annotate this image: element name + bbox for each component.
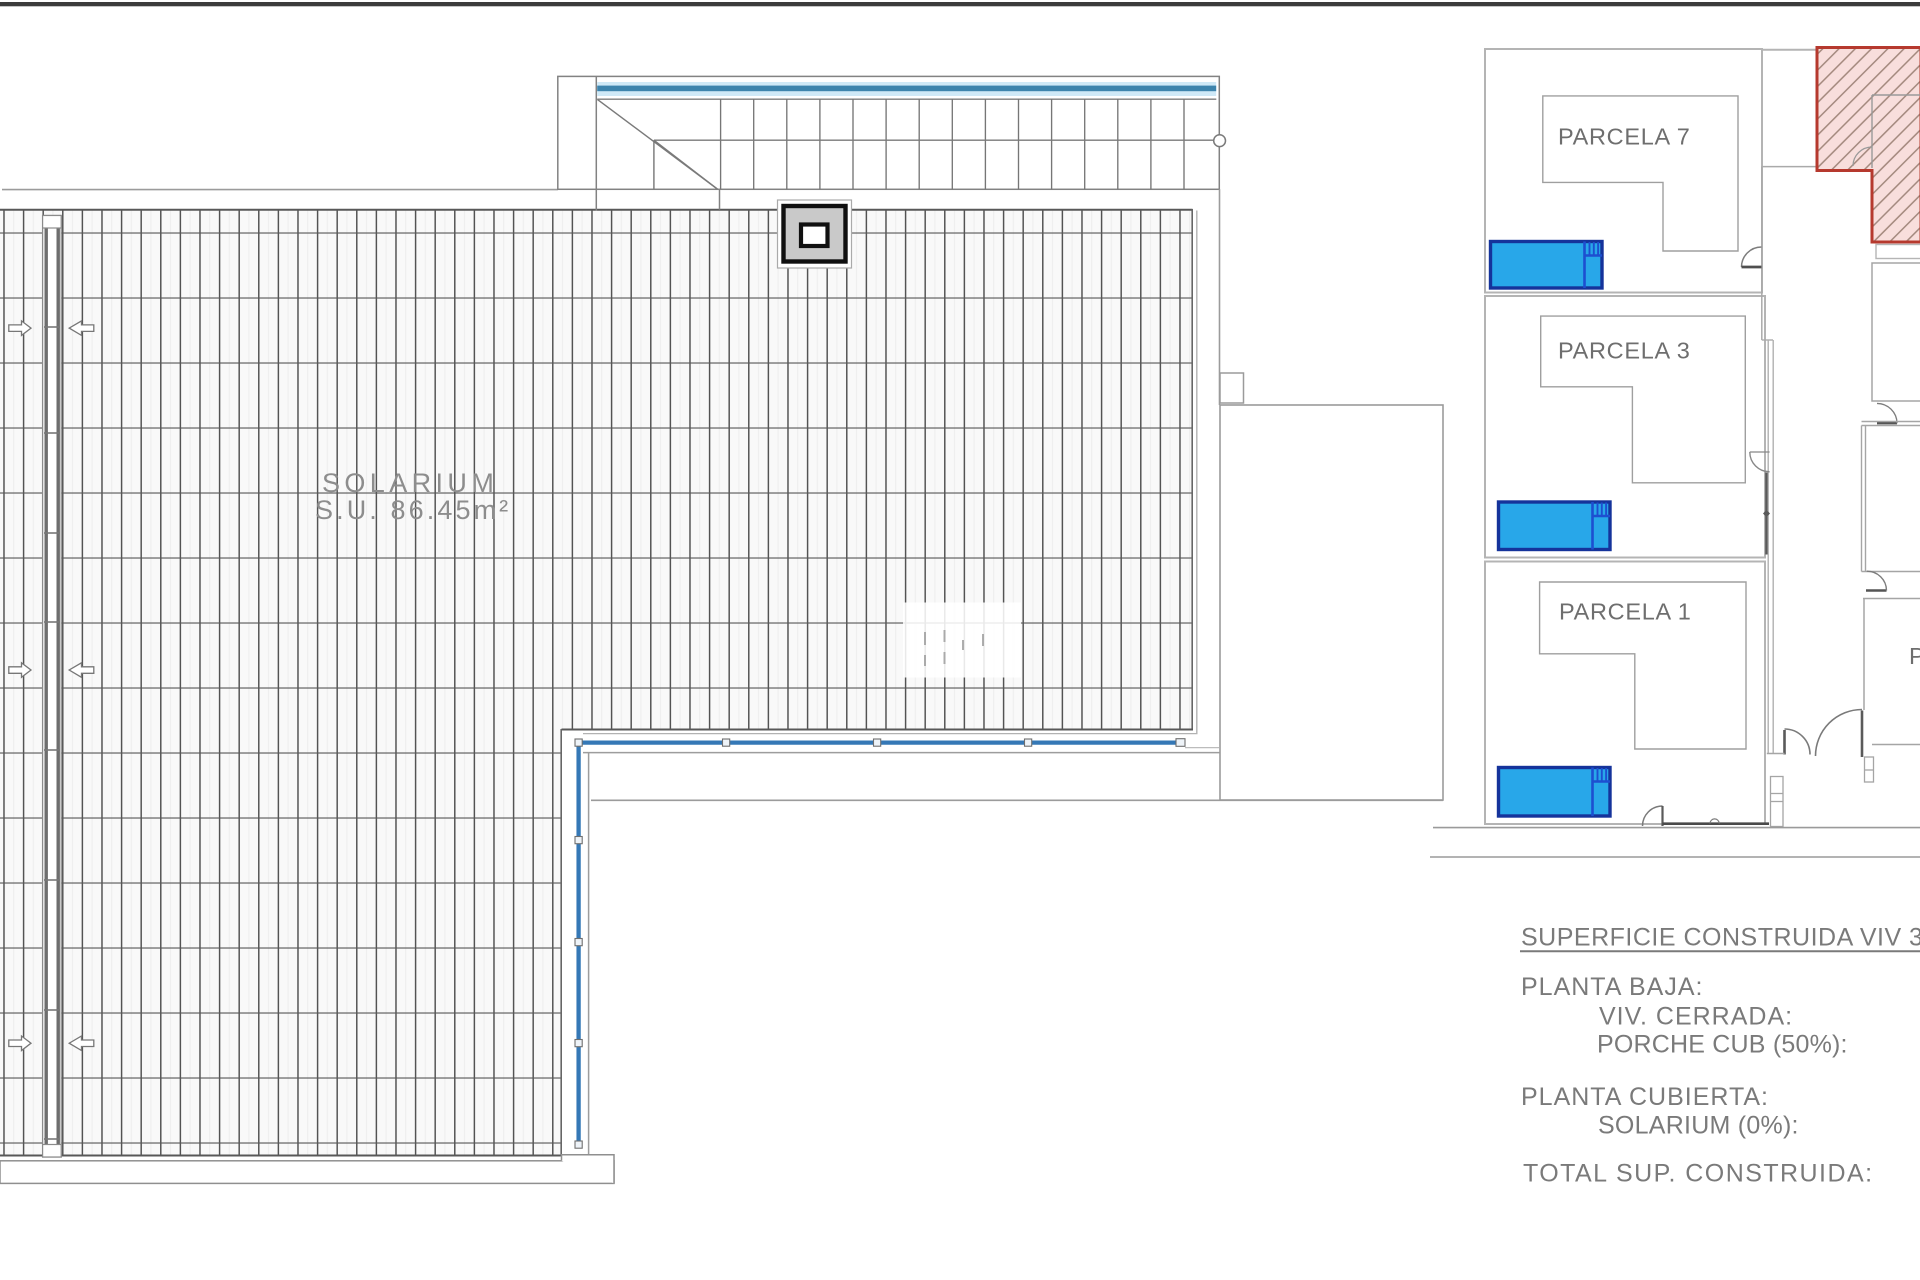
svg-text:PORCHE CUB (50%):: PORCHE CUB (50%): [1597, 1031, 1848, 1059]
svg-text:VIV. CERRADA:: VIV. CERRADA: [1599, 1003, 1793, 1031]
svg-text:SOLARIUM: SOLARIUM [322, 468, 498, 498]
svg-text:TOTAL SUP. CONSTRUIDA:: TOTAL SUP. CONSTRUIDA: [1523, 1160, 1873, 1188]
svg-text:P: P [1909, 643, 1920, 669]
svg-text:PARCELA 7: PARCELA 7 [1558, 124, 1691, 150]
svg-text:PLANTA CUBIERTA:: PLANTA CUBIERTA: [1521, 1083, 1769, 1111]
svg-text:PLANTA BAJA:: PLANTA BAJA: [1521, 973, 1703, 1001]
svg-text:S.U. 86.45m²: S.U. 86.45m² [315, 495, 511, 525]
svg-text:SOLARIUM (0%):: SOLARIUM (0%): [1598, 1112, 1799, 1140]
svg-text:PARCELA 3: PARCELA 3 [1558, 338, 1691, 364]
svg-text:SUPERFICIE CONSTRUIDA VIV 3: SUPERFICIE CONSTRUIDA VIV 3 [1521, 924, 1920, 952]
svg-text:PARCELA 1: PARCELA 1 [1559, 599, 1692, 625]
